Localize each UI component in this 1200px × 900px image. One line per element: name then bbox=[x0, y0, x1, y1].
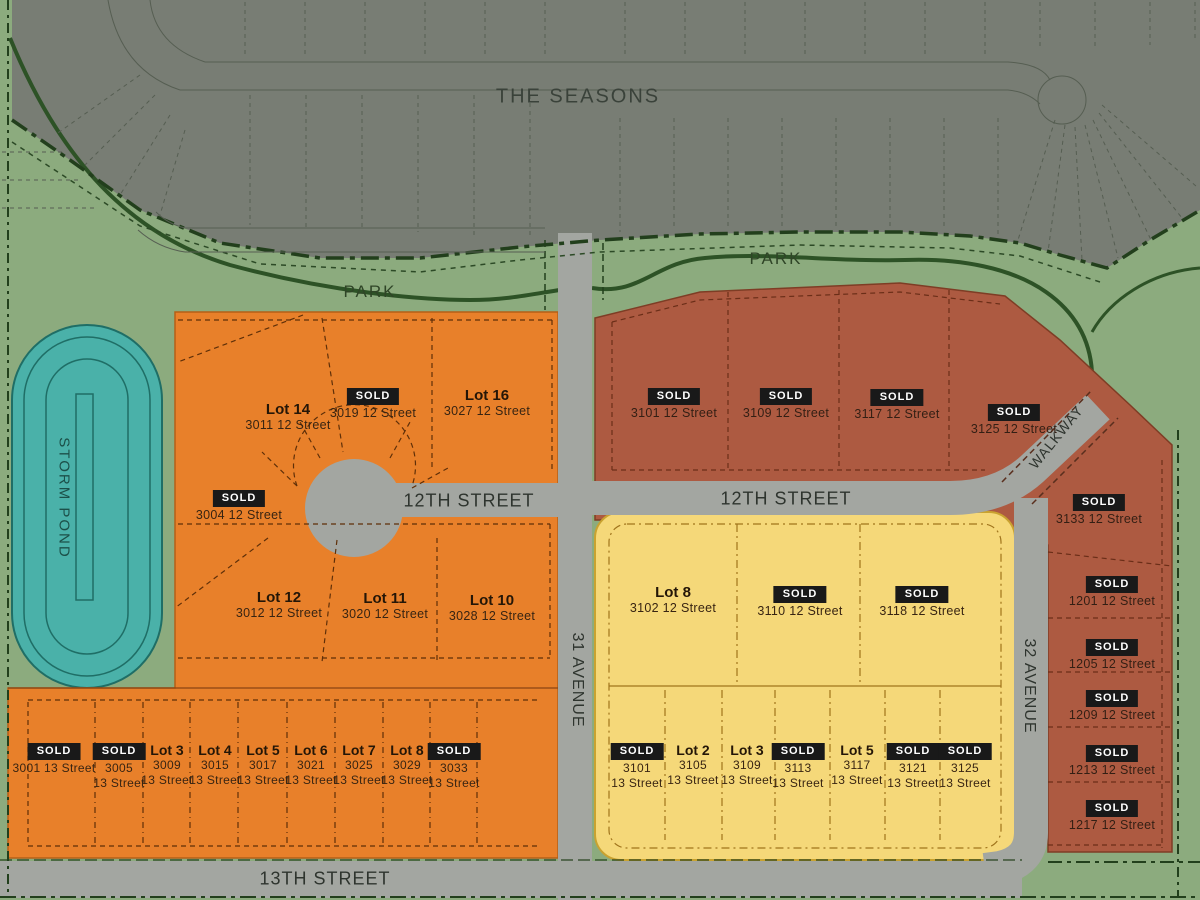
sold-badge: SOLD bbox=[760, 388, 813, 405]
site-plan-map: THE SEASONS PARK PARK STORM POND 12TH ST… bbox=[0, 0, 1200, 900]
lot-label: SOLD3133 12 Street bbox=[1056, 493, 1142, 527]
lot-address: 13 Street bbox=[93, 776, 146, 791]
avenue-32-label: 32 AVENUE bbox=[1020, 639, 1038, 734]
lot-label: SOLD3019 12 Street bbox=[330, 387, 416, 421]
park-label-west: PARK bbox=[343, 282, 396, 302]
lot-number: Lot 5 bbox=[237, 742, 288, 758]
lot-label: SOLD312113 Street bbox=[887, 742, 940, 790]
lot-label: SOLD1201 12 Street bbox=[1069, 575, 1155, 609]
lot-address: 3019 12 Street bbox=[330, 406, 416, 421]
lot-number: Lot 12 bbox=[236, 589, 322, 606]
sold-badge: SOLD bbox=[93, 743, 146, 760]
lot-address: 3117 bbox=[831, 758, 882, 773]
twelfth-street-west-label: 12TH STREET bbox=[403, 491, 534, 512]
lot-number: Lot 14 bbox=[245, 401, 330, 418]
lot-label: SOLD312513 Street bbox=[939, 742, 992, 790]
lot-number: Lot 11 bbox=[342, 590, 428, 607]
lot-number: Lot 8 bbox=[381, 742, 432, 758]
lot-address: 3121 bbox=[887, 761, 940, 776]
sold-badge: SOLD bbox=[1086, 576, 1139, 593]
lot-address: 3105 bbox=[667, 758, 718, 773]
lot-address: 3133 12 Street bbox=[1056, 512, 1142, 527]
lot-address: 13 Street bbox=[237, 773, 288, 788]
sold-badge: SOLD bbox=[774, 586, 827, 603]
lot-label: Lot 7302513 Street bbox=[333, 742, 384, 787]
lot-address: 3118 12 Street bbox=[879, 604, 964, 619]
sold-badge: SOLD bbox=[611, 743, 664, 760]
lot-address: 3109 bbox=[721, 758, 772, 773]
lot-address: 3125 12 Street bbox=[971, 422, 1057, 437]
sold-badge: SOLD bbox=[871, 389, 924, 406]
the-seasons-label: THE SEASONS bbox=[496, 86, 660, 109]
thirteenth-street-label: 13TH STREET bbox=[259, 869, 390, 890]
lot-address: 1217 12 Street bbox=[1069, 818, 1155, 833]
lot-address: 3102 12 Street bbox=[630, 601, 716, 616]
lot-number: Lot 10 bbox=[449, 592, 535, 609]
lot-label: Lot 83102 12 Street bbox=[630, 584, 716, 616]
lot-address: 13 Street bbox=[611, 776, 664, 791]
lot-address: 3101 12 Street bbox=[631, 406, 717, 421]
lot-label: Lot 113020 12 Street bbox=[342, 590, 428, 622]
lot-address: 13 Street bbox=[939, 776, 992, 791]
thirteenth-street-road bbox=[0, 861, 1022, 898]
lot-address: 13 Street bbox=[381, 773, 432, 788]
lot-number: Lot 8 bbox=[630, 584, 716, 601]
sold-badge: SOLD bbox=[648, 388, 701, 405]
lot-address: 13 Street bbox=[772, 776, 825, 791]
lot-address: 1209 12 Street bbox=[1069, 708, 1155, 723]
lot-address: 13 Street bbox=[667, 773, 718, 788]
lot-label: Lot 163027 12 Street bbox=[444, 387, 530, 419]
lot-label: SOLD3125 12 Street bbox=[971, 403, 1057, 437]
lot-address: 3101 bbox=[611, 761, 664, 776]
lot-label: SOLD3004 12 Street bbox=[196, 489, 282, 523]
lot-label: Lot 8302913 Street bbox=[381, 742, 432, 787]
lot-number: Lot 6 bbox=[285, 742, 336, 758]
lot-address: 13 Street bbox=[333, 773, 384, 788]
lot-address: 3011 12 Street bbox=[245, 418, 330, 433]
lot-address: 3005 bbox=[93, 761, 146, 776]
sold-badge: SOLD bbox=[28, 743, 81, 760]
lot-address: 13 Street bbox=[831, 773, 882, 788]
lot-label: Lot 103028 12 Street bbox=[449, 592, 535, 624]
lot-address: 1201 12 Street bbox=[1069, 594, 1155, 609]
lot-address: 3117 12 Street bbox=[854, 407, 939, 422]
lot-label: SOLD1217 12 Street bbox=[1069, 799, 1155, 833]
lot-address: 3029 bbox=[381, 758, 432, 773]
sold-badge: SOLD bbox=[1086, 800, 1139, 817]
lot-address: 13 Street bbox=[721, 773, 772, 788]
lot-address: 13 Street bbox=[141, 773, 192, 788]
lot-label: Lot 4301513 Street bbox=[189, 742, 240, 787]
lot-address: 3015 bbox=[189, 758, 240, 773]
sold-badge: SOLD bbox=[988, 404, 1041, 421]
lot-address: 13 Street bbox=[189, 773, 240, 788]
sold-badge: SOLD bbox=[213, 490, 266, 507]
lot-number: Lot 5 bbox=[831, 742, 882, 758]
lot-number: Lot 3 bbox=[141, 742, 192, 758]
lot-number: Lot 16 bbox=[444, 387, 530, 404]
lot-label: SOLD303313 Street bbox=[428, 742, 481, 790]
lot-address: 3004 12 Street bbox=[196, 508, 282, 523]
lot-label: SOLD3110 12 Street bbox=[757, 585, 842, 619]
sold-badge: SOLD bbox=[1073, 494, 1126, 511]
lot-address: 13 Street bbox=[887, 776, 940, 791]
lot-address: 3001 13 Street bbox=[13, 761, 96, 776]
lot-number: Lot 2 bbox=[667, 742, 718, 758]
lot-address: 3020 12 Street bbox=[342, 607, 428, 622]
lot-address: 3110 12 Street bbox=[757, 604, 842, 619]
lot-number: Lot 4 bbox=[189, 742, 240, 758]
sold-badge: SOLD bbox=[887, 743, 940, 760]
lot-label: SOLD3101 12 Street bbox=[631, 387, 717, 421]
sold-badge: SOLD bbox=[939, 743, 992, 760]
lot-label: Lot 143011 12 Street bbox=[245, 401, 330, 433]
avenue-31-label: 31 AVENUE bbox=[568, 633, 586, 728]
lot-address: 3009 bbox=[141, 758, 192, 773]
sold-badge: SOLD bbox=[428, 743, 481, 760]
sold-badge: SOLD bbox=[1086, 690, 1139, 707]
lot-address: 3025 bbox=[333, 758, 384, 773]
sold-badge: SOLD bbox=[896, 586, 949, 603]
lot-label: SOLD3117 12 Street bbox=[854, 388, 939, 422]
lot-label: SOLD1205 12 Street bbox=[1069, 638, 1155, 672]
lot-label: SOLD1213 12 Street bbox=[1069, 744, 1155, 778]
lot-address: 3113 bbox=[772, 761, 825, 776]
lot-label: SOLD3109 12 Street bbox=[743, 387, 829, 421]
lot-label: Lot 6302113 Street bbox=[285, 742, 336, 787]
twelfth-street-east-label: 12TH STREET bbox=[720, 489, 851, 510]
lot-label: Lot 123012 12 Street bbox=[236, 589, 322, 621]
lot-label: SOLD3118 12 Street bbox=[879, 585, 964, 619]
lot-label: SOLD300513 Street bbox=[93, 742, 146, 790]
sold-badge: SOLD bbox=[1086, 639, 1139, 656]
lot-label: SOLD3001 13 Street bbox=[13, 742, 96, 776]
storm-pond-label: STORM POND bbox=[56, 437, 73, 558]
lot-address: 3028 12 Street bbox=[449, 609, 535, 624]
lot-address: 3027 12 Street bbox=[444, 404, 530, 419]
sold-badge: SOLD bbox=[772, 743, 825, 760]
avenue-31-road bbox=[558, 233, 592, 900]
sold-badge: SOLD bbox=[1086, 745, 1139, 762]
lot-label: Lot 5311713 Street bbox=[831, 742, 882, 787]
lot-label: SOLD311313 Street bbox=[772, 742, 825, 790]
lot-number: Lot 3 bbox=[721, 742, 772, 758]
lot-label: Lot 3300913 Street bbox=[141, 742, 192, 787]
lot-address: 1205 12 Street bbox=[1069, 657, 1155, 672]
sold-badge: SOLD bbox=[347, 388, 400, 405]
lot-address: 3012 12 Street bbox=[236, 606, 322, 621]
lot-label: Lot 2310513 Street bbox=[667, 742, 718, 787]
lot-address: 3017 bbox=[237, 758, 288, 773]
lot-address: 3109 12 Street bbox=[743, 406, 829, 421]
lot-address: 13 Street bbox=[428, 776, 481, 791]
lot-address: 13 Street bbox=[285, 773, 336, 788]
lot-address: 3021 bbox=[285, 758, 336, 773]
lot-number: Lot 7 bbox=[333, 742, 384, 758]
lot-label: SOLD1209 12 Street bbox=[1069, 689, 1155, 723]
lot-label: SOLD310113 Street bbox=[611, 742, 664, 790]
park-label-east: PARK bbox=[749, 249, 802, 269]
lot-address: 3033 bbox=[428, 761, 481, 776]
lot-address: 1213 12 Street bbox=[1069, 763, 1155, 778]
lot-address: 3125 bbox=[939, 761, 992, 776]
lot-label: Lot 5301713 Street bbox=[237, 742, 288, 787]
lot-label: Lot 3310913 Street bbox=[721, 742, 772, 787]
storm-pond bbox=[12, 325, 162, 688]
